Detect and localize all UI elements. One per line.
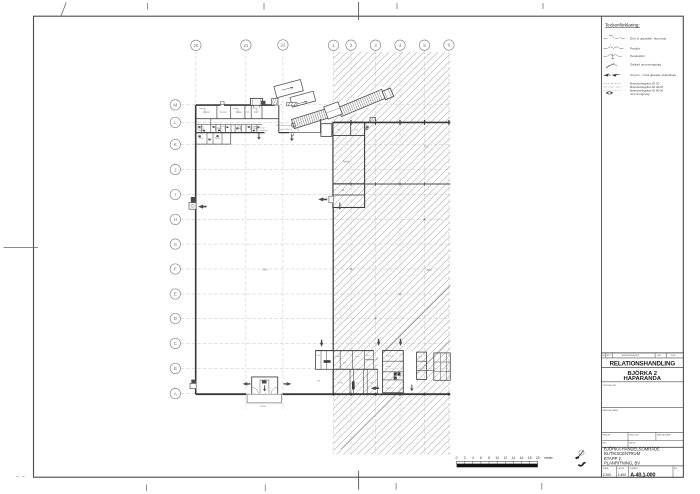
svg-text:21: 21: [243, 43, 249, 48]
svg-text:ÄNDRINGEN AVSER: ÄNDRINGEN AVSER: [622, 354, 640, 357]
svg-text:G: G: [174, 242, 178, 247]
svg-text:Gallrad utrymningsväg: Gallrad utrymningsväg: [630, 63, 661, 67]
svg-text:6: 6: [480, 456, 482, 460]
svg-text:I: I: [175, 192, 176, 197]
svg-text:20: 20: [193, 43, 199, 48]
svg-text:Soprum: Soprum: [386, 387, 394, 390]
svg-text:SKALA: SKALA: [603, 467, 610, 470]
svg-text:1:200: 1:200: [603, 473, 612, 477]
svg-text:B01: B01: [427, 268, 433, 272]
svg-text:2: 2: [350, 43, 353, 48]
svg-text:Entré: Entré: [261, 405, 267, 408]
svg-text:5: 5: [423, 43, 426, 48]
svg-text:HAPARANDA: HAPARANDA: [624, 376, 662, 382]
svg-text:2: 2: [464, 456, 466, 460]
svg-text:3: 3: [374, 43, 377, 48]
svg-text:22: 22: [280, 43, 286, 48]
svg-text:H: H: [174, 217, 177, 222]
svg-text:4: 4: [399, 43, 402, 48]
svg-text:M: M: [173, 103, 177, 108]
svg-text:1:400: 1:400: [618, 473, 627, 477]
svg-text:SIGN: SIGN: [671, 355, 676, 357]
svg-text:PLANRITNING, BV: PLANRITNING, BV: [604, 460, 640, 465]
svg-text:RELATIONSHANDLING: RELATIONSHANDLING: [610, 360, 676, 367]
svg-text:Teknik: Teknik: [343, 160, 351, 164]
svg-text:RITAD AV: RITAD AV: [603, 434, 612, 437]
svg-text:16: 16: [520, 456, 524, 460]
svg-text:Städ: Städ: [386, 365, 391, 368]
svg-text:meter: meter: [544, 456, 553, 460]
svg-text:DATUM: DATUM: [618, 467, 625, 470]
svg-text:750: 750: [424, 146, 429, 149]
svg-text:Städ: Städ: [215, 137, 220, 140]
svg-text:E: E: [174, 292, 177, 297]
svg-text:10: 10: [495, 456, 499, 460]
svg-text:Kontor: Kontor: [220, 111, 227, 114]
svg-text:A-40,1-000: A-40,1-000: [630, 472, 655, 478]
svg-text:yta 4 340 m²: yta 4 340 m²: [280, 128, 292, 131]
svg-text:Kontor: Kontor: [236, 111, 243, 114]
svg-text:14: 14: [512, 456, 516, 460]
svg-text:Utrymn. i nivå glasade objektl: Utrymn. i nivå glasade objektlinjer: [630, 73, 676, 77]
svg-text:F: F: [174, 267, 177, 272]
svg-text:STÄLLD AV: STÄLLD AV: [629, 434, 639, 437]
svg-text:B02: B02: [263, 268, 269, 272]
svg-text:Dörr & uppställn. (komma): Dörr & uppställn. (komma): [630, 37, 666, 41]
svg-text:12: 12: [503, 456, 507, 460]
svg-text:Förråd: Förråd: [386, 355, 393, 358]
svg-text:Omkl: Omkl: [335, 356, 341, 358]
svg-text:Pau: Pau: [237, 128, 242, 130]
svg-text:0: 0: [456, 456, 458, 460]
svg-text:NUMMER: NUMMER: [630, 468, 639, 470]
svg-text:J: J: [174, 167, 176, 172]
svg-text:20: 20: [536, 456, 540, 460]
svg-text:Pendeldörr: Pendeldörr: [630, 54, 645, 58]
svg-text:HANDLÄGGARE: HANDLÄGGARE: [603, 409, 619, 412]
svg-text:vindfång: vindfång: [259, 129, 268, 132]
svg-text:Omkl: Omkl: [338, 383, 344, 385]
svg-text:utrymningsväg: utrymningsväg: [630, 92, 650, 96]
svg-text:B: B: [174, 366, 177, 371]
svg-text:Teckenförklaring:: Teckenförklaring:: [605, 23, 640, 28]
svg-text:1: 1: [332, 43, 335, 48]
svg-text:Total uthyrningsbar: Total uthyrningsbar: [276, 124, 295, 127]
svg-text:18: 18: [528, 456, 532, 460]
svg-text:HANDLÄGGARE: HANDLÄGGARE: [657, 434, 672, 437]
svg-text:Kontor: Kontor: [203, 111, 210, 114]
svg-text:6: 6: [448, 43, 451, 48]
svg-text:L: L: [174, 120, 177, 125]
svg-text:UPPDRAG NR: UPPDRAG NR: [603, 384, 617, 387]
svg-text:4: 4: [472, 456, 474, 460]
svg-text:DATUM: DATUM: [629, 442, 636, 445]
svg-text:8: 8: [488, 456, 490, 460]
svg-text:Pardörr: Pardörr: [630, 47, 640, 51]
